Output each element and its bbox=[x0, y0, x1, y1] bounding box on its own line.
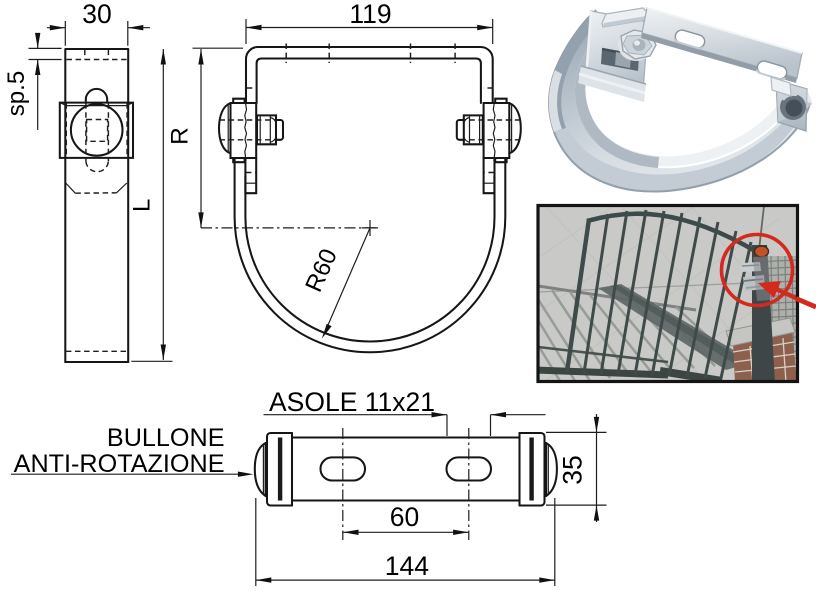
svg-text:ASOLE 11x21: ASOLE 11x21 bbox=[269, 387, 435, 417]
svg-text:R: R bbox=[167, 127, 194, 145]
svg-text:144: 144 bbox=[385, 551, 429, 581]
svg-text:ANTI-ROTAZIONE: ANTI-ROTAZIONE bbox=[14, 450, 225, 478]
svg-text:60: 60 bbox=[390, 502, 419, 532]
svg-text:35: 35 bbox=[558, 455, 588, 484]
svg-text:119: 119 bbox=[349, 0, 391, 29]
svg-text:30: 30 bbox=[82, 0, 111, 29]
svg-text:BULLONE: BULLONE bbox=[107, 424, 225, 452]
svg-text:L: L bbox=[129, 199, 156, 212]
svg-text:sp.5: sp.5 bbox=[3, 71, 30, 116]
